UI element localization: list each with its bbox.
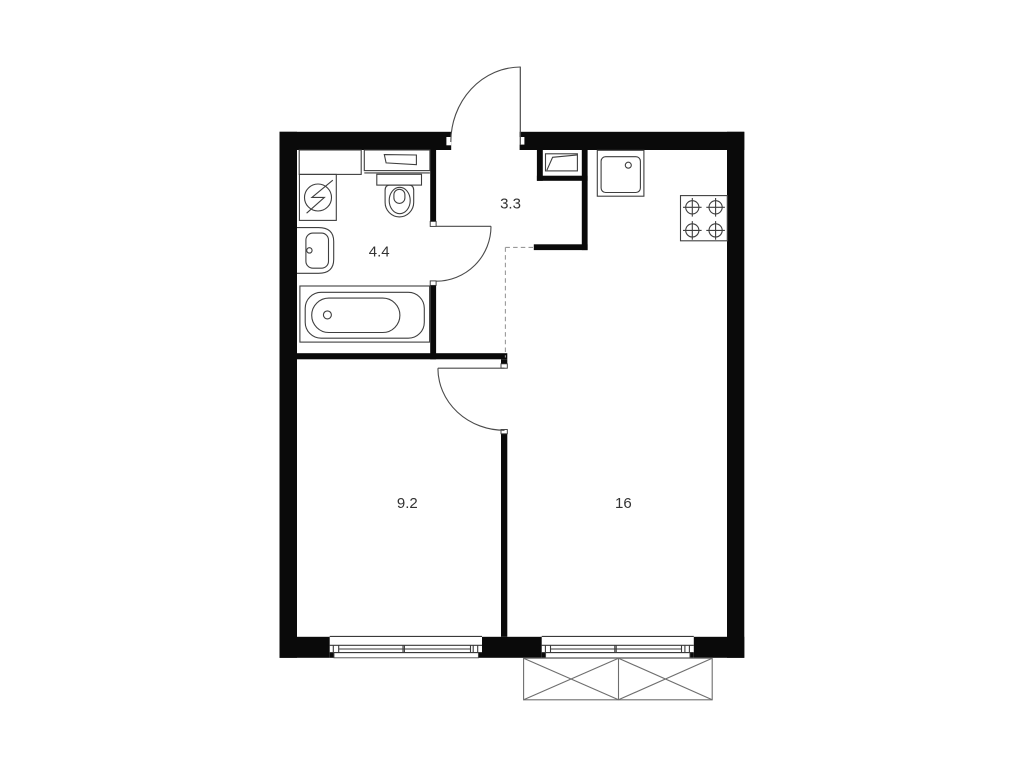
svg-text:16: 16 [615,495,632,512]
svg-text:4.4: 4.4 [369,243,390,260]
svg-text:3.3: 3.3 [500,195,521,212]
svg-text:9.2: 9.2 [397,495,418,512]
